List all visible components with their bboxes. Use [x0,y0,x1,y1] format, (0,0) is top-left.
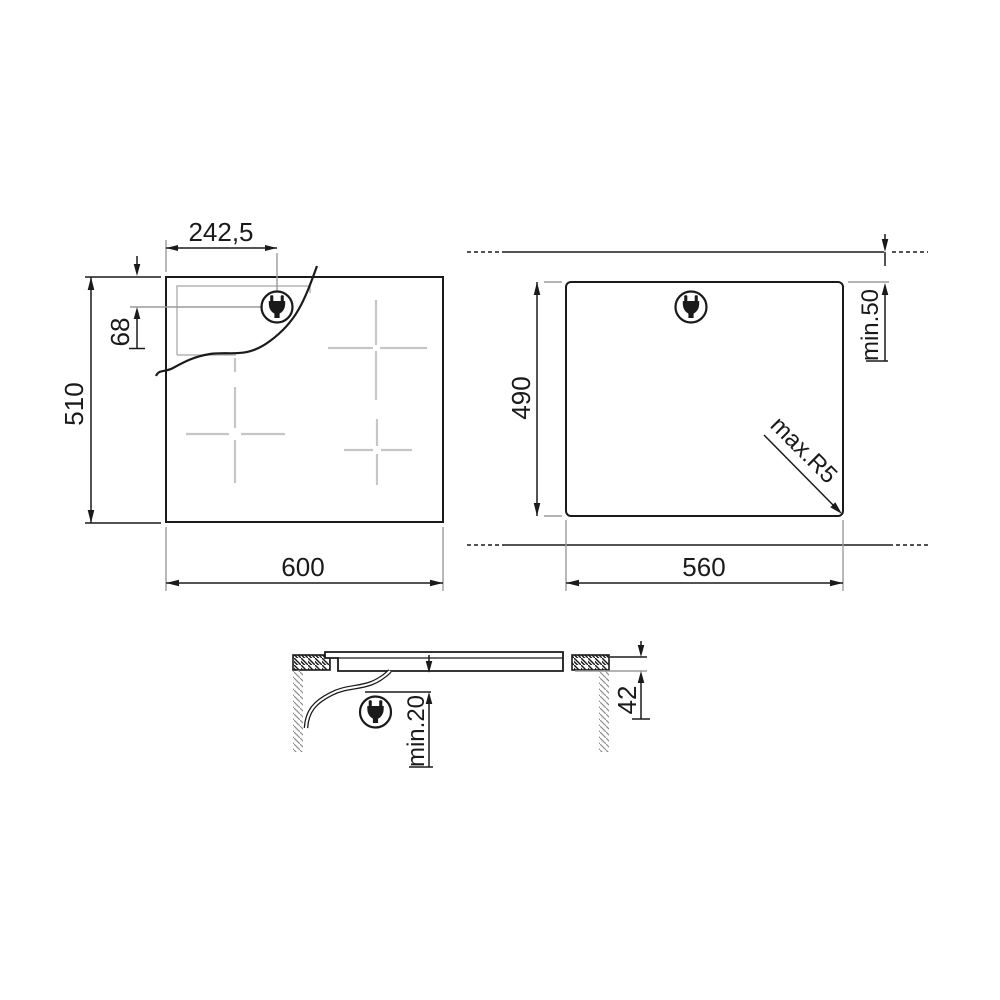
dim-plug-offset-y-label: 68 [105,318,135,347]
cutout-view: 490 560 min.50 max.R5 [467,234,928,591]
dim-hob-build-height: 42 [575,641,650,719]
dim-hob-height-label: 510 [59,382,89,425]
dim-hob-height: 510 [59,277,161,523]
dim-cutout-depth-label: 490 [506,376,536,419]
power-plug-icon [676,292,707,323]
power-plug-icon [360,697,391,728]
hob-profile [325,652,563,671]
worktop-section-right [572,655,609,670]
dim-hob-width: 600 [166,527,443,591]
dim-min-top-clearance: min.50 [848,234,889,361]
hob-outline [166,277,443,522]
dim-hob-width-label: 600 [281,552,324,582]
power-plug-icon [262,292,293,323]
installation-diagram-page: 242,5 68 510 600 [0,0,1000,1000]
cabinet-panel-right [599,670,609,752]
dim-cutout-width: 560 [566,520,843,591]
dim-min-top-clearance-label: min.50 [857,289,884,361]
dim-min-bottom-clearance-label: min.20 [403,695,430,767]
dim-cutout-depth: 490 [506,282,562,516]
dim-hob-build-height-label: 42 [612,686,642,715]
installation-diagram: 242,5 68 510 600 [0,0,1000,1000]
dim-plug-offset-x-label: 242,5 [188,217,253,247]
cutout-outline [566,282,843,516]
cabinet-panel-left [293,670,303,752]
side-view: 42 min.20 [293,641,650,767]
top-view: 242,5 68 510 600 [59,217,443,591]
dim-cutout-width-label: 560 [682,552,725,582]
